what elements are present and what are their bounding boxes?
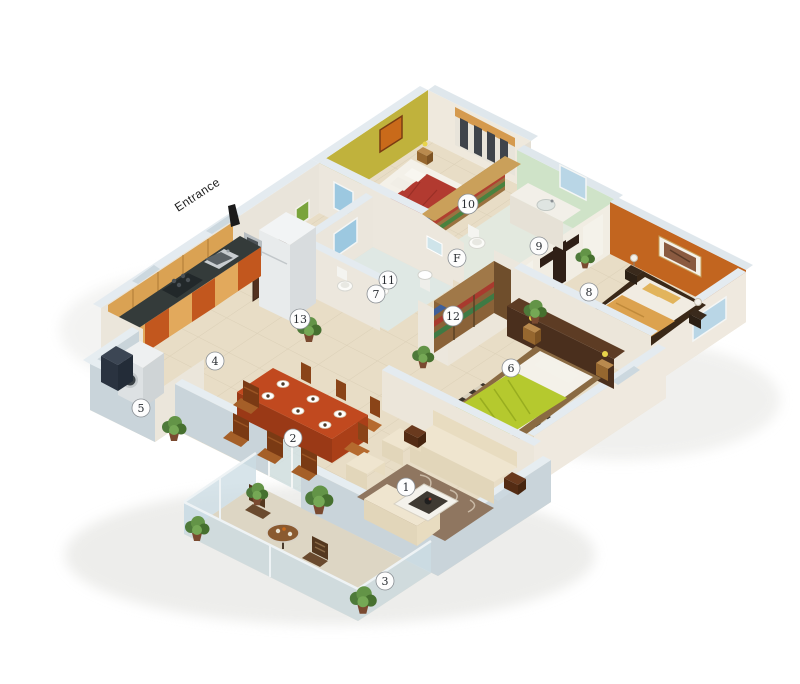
room-marker-9: 9 (530, 237, 548, 255)
entrance-label: Entrance (172, 175, 223, 215)
room-marker-1: 1 (397, 478, 415, 496)
svg-text:12: 12 (446, 310, 460, 323)
room-marker-6: 6 (502, 359, 520, 377)
svg-text:4: 4 (212, 355, 219, 368)
tap (551, 200, 554, 203)
svg-text:1: 1 (403, 481, 410, 494)
room-marker-5: 5 (132, 399, 150, 417)
room-marker-12: 12 (443, 306, 463, 326)
svg-text:F: F (453, 252, 461, 265)
room-marker-3: 3 (376, 572, 394, 590)
room-marker-10: 10 (458, 194, 478, 214)
room-marker-13: 13 (290, 309, 310, 329)
room-marker-7: 7 (367, 285, 385, 303)
room-marker-4: 4 (206, 352, 224, 370)
floor-plan-render: 1 2 3 4 5 6 7 8 9 10 11 12 13 F Entrance (0, 0, 800, 684)
room-marker-11: 11 (379, 271, 397, 289)
svg-text:11: 11 (381, 274, 395, 287)
svg-text:7: 7 (373, 288, 380, 301)
svg-text:9: 9 (536, 240, 543, 253)
svg-text:3: 3 (382, 575, 389, 588)
svg-text:13: 13 (293, 313, 307, 326)
svg-text:6: 6 (508, 362, 515, 375)
room-marker-8: 8 (580, 283, 598, 301)
svg-text:5: 5 (138, 402, 145, 415)
floor-plan-page: 1 2 3 4 5 6 7 8 9 10 11 12 13 F Entrance (0, 0, 800, 684)
refrigerator (259, 212, 316, 321)
room-marker-F: F (448, 249, 466, 267)
room-marker-2: 2 (284, 429, 302, 447)
svg-text:10: 10 (461, 198, 475, 211)
svg-text:2: 2 (290, 432, 297, 445)
svg-text:8: 8 (586, 286, 593, 299)
